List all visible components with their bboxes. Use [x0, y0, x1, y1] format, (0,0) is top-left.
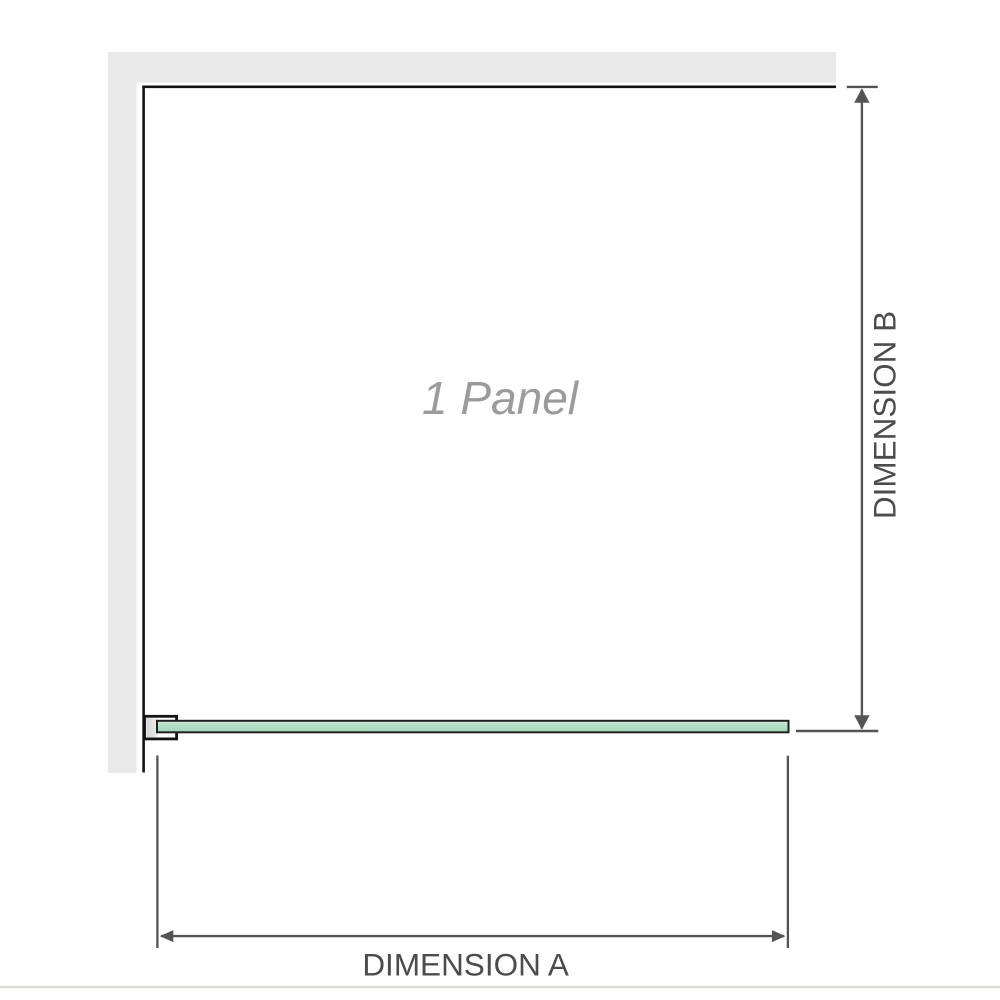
- svg-text:1 Panel: 1 Panel: [422, 372, 580, 424]
- svg-text:DIMENSION A: DIMENSION A: [362, 946, 569, 982]
- svg-text:DIMENSION B: DIMENSION B: [867, 311, 903, 519]
